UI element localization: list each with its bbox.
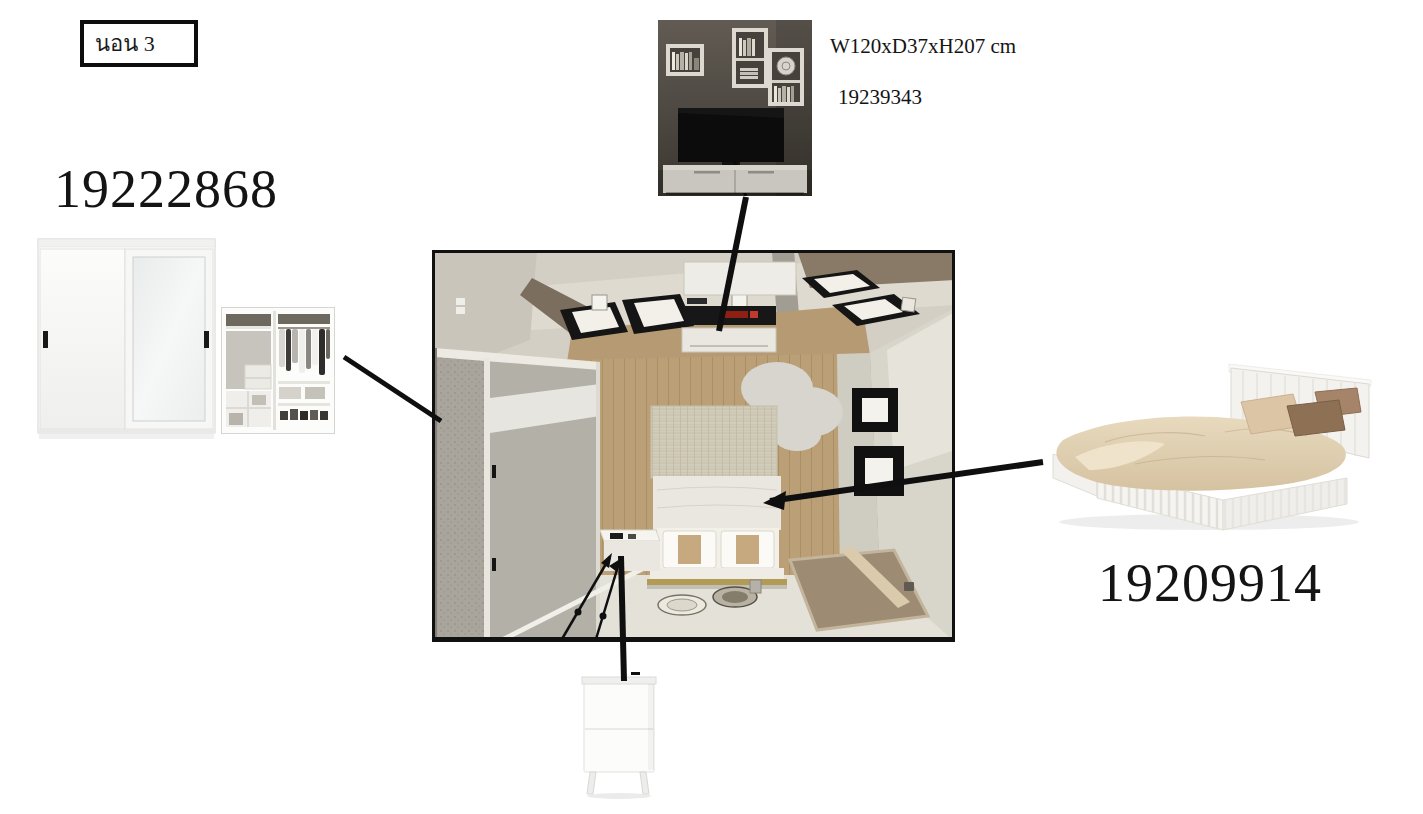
bed-product-id: 19209914	[1098, 552, 1322, 614]
floorplan-illustration	[432, 250, 955, 642]
wardrobe-product-id: 19222868	[54, 158, 278, 220]
tv-unit-product-id: 19239343	[838, 85, 922, 110]
shelf-box-left	[666, 44, 704, 76]
wardrobe-closed-illustration	[35, 235, 218, 442]
plan-nightstand	[600, 530, 660, 571]
wardrobe-interior-illustration	[221, 307, 335, 434]
nightstand-illustration	[576, 668, 662, 800]
tv-screen	[678, 108, 784, 165]
bed-illustration	[1045, 362, 1373, 534]
room-label-box: นอน 3	[80, 20, 198, 67]
connector-wardrobe-line	[344, 357, 441, 421]
tv-unit-image	[658, 20, 812, 196]
shelf-box-right	[768, 48, 804, 106]
tv-unit-illustration	[658, 20, 812, 196]
shelf-box-middle	[732, 28, 768, 88]
plan-bed	[647, 406, 787, 589]
tv-unit-dimensions: W120xD37xH207 cm	[830, 34, 1016, 59]
furniture-layout-page: นอน 3 19222868	[0, 0, 1423, 814]
room-label: นอน 3	[95, 26, 155, 61]
floorplan-image	[432, 250, 955, 642]
bed-image	[1045, 362, 1373, 534]
nightstand-image	[576, 668, 662, 800]
wardrobe-interior-image	[221, 307, 335, 434]
wardrobe-image	[35, 235, 218, 442]
tv-cabinet	[663, 165, 807, 195]
